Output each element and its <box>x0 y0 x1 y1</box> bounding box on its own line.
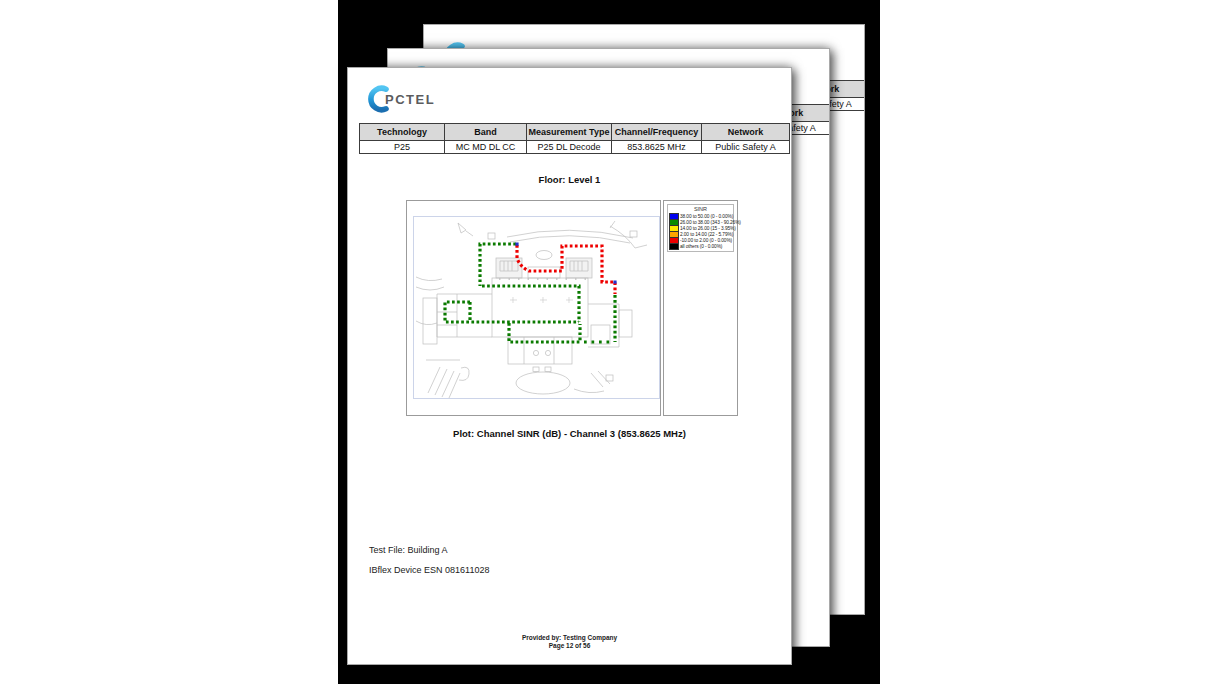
legend-label: 2.00 to 14.00 (22 - 5.79%) <box>680 232 733 237</box>
table-value-cell: Public Safety A <box>702 141 790 154</box>
pctel-logo-text: PCTEL <box>385 92 435 107</box>
legend-label: 14.00 to 26.00 (15 - 3.95%) <box>680 226 736 231</box>
legend-row: 2.00 to 14.00 (22 - 5.79%) <box>670 232 733 237</box>
legend-swatch-orange <box>670 232 678 236</box>
legend-label: all others (0 - 0.00%) <box>680 244 722 249</box>
table-header-cell: Band <box>445 124 527 141</box>
legend-label: -10.00 to 2.00 (0 - 0.00%) <box>680 238 732 243</box>
test-file-label: Test File: Building A <box>369 545 448 555</box>
legend-swatch-yellow <box>670 226 678 230</box>
legend-row: -10.00 to 2.00 (0 - 0.00%) <box>670 238 733 243</box>
legend-row: 38.00 to 50.00 (0 - 0.00%) <box>670 214 733 219</box>
footer-page-number: Page 12 of 56 <box>348 642 791 650</box>
legend-row: all others (0 - 0.00%) <box>670 244 733 249</box>
floor-plan-image-frame <box>413 216 660 399</box>
page-footer: Provided by: Testing Company Page 12 of … <box>348 634 791 650</box>
legend-label: 38.00 to 50.00 (0 - 0.00%) <box>680 214 733 219</box>
legend-row: 14.00 to 26.00 (15 - 3.95%) <box>670 226 733 231</box>
table-value-cell: P25 <box>360 141 445 154</box>
device-esn-label: IBflex Device ESN 081611028 <box>369 565 489 575</box>
legend-row: 26.00 to 38.00 (343 - 90.26%) <box>670 220 733 225</box>
footer-provided-by: Provided by: Testing Company <box>348 634 791 642</box>
legend-title: SINR <box>668 206 733 213</box>
table-value-cell: P25 DL Decode <box>527 141 612 154</box>
table-header-cell: Measurement Type <box>527 124 612 141</box>
table-header-cell: Technology <box>360 124 445 141</box>
table-header-cell: Channel/Frequency <box>612 124 702 141</box>
pctel-logo: PCTEL <box>368 85 435 113</box>
measurement-header-table: Technology Band Measurement Type Channel… <box>359 123 790 154</box>
floor-heading: Floor: Level 1 <box>348 174 791 185</box>
screenshot-canvas: PCTEL Technology Band Measurement Type C… <box>0 0 1216 684</box>
legend-label: 26.00 to 38.00 (343 - 90.26%) <box>680 220 741 225</box>
floor-plan-container <box>406 200 661 416</box>
legend-swatch-black <box>670 244 678 248</box>
sinr-legend-box: SINR 38.00 to 50.00 (0 - 0.00%) 26.00 to… <box>667 204 734 252</box>
plot-caption: Plot: Channel SINR (dB) - Channel 3 (853… <box>348 428 791 439</box>
table-value-cell: 853.8625 MHz <box>612 141 702 154</box>
sinr-legend-panel: SINR 38.00 to 50.00 (0 - 0.00%) 26.00 to… <box>663 200 738 416</box>
building-linework <box>416 221 647 398</box>
legend-swatch-red <box>670 238 678 242</box>
report-page-front: PCTEL Technology Band Measurement Type C… <box>347 67 792 665</box>
table-value-cell: MC MD DL CC <box>445 141 527 154</box>
table-header-cell: Network <box>702 124 790 141</box>
legend-swatch-green <box>670 220 678 224</box>
legend-swatch-blue <box>670 214 678 218</box>
floor-plan-map <box>414 217 659 398</box>
